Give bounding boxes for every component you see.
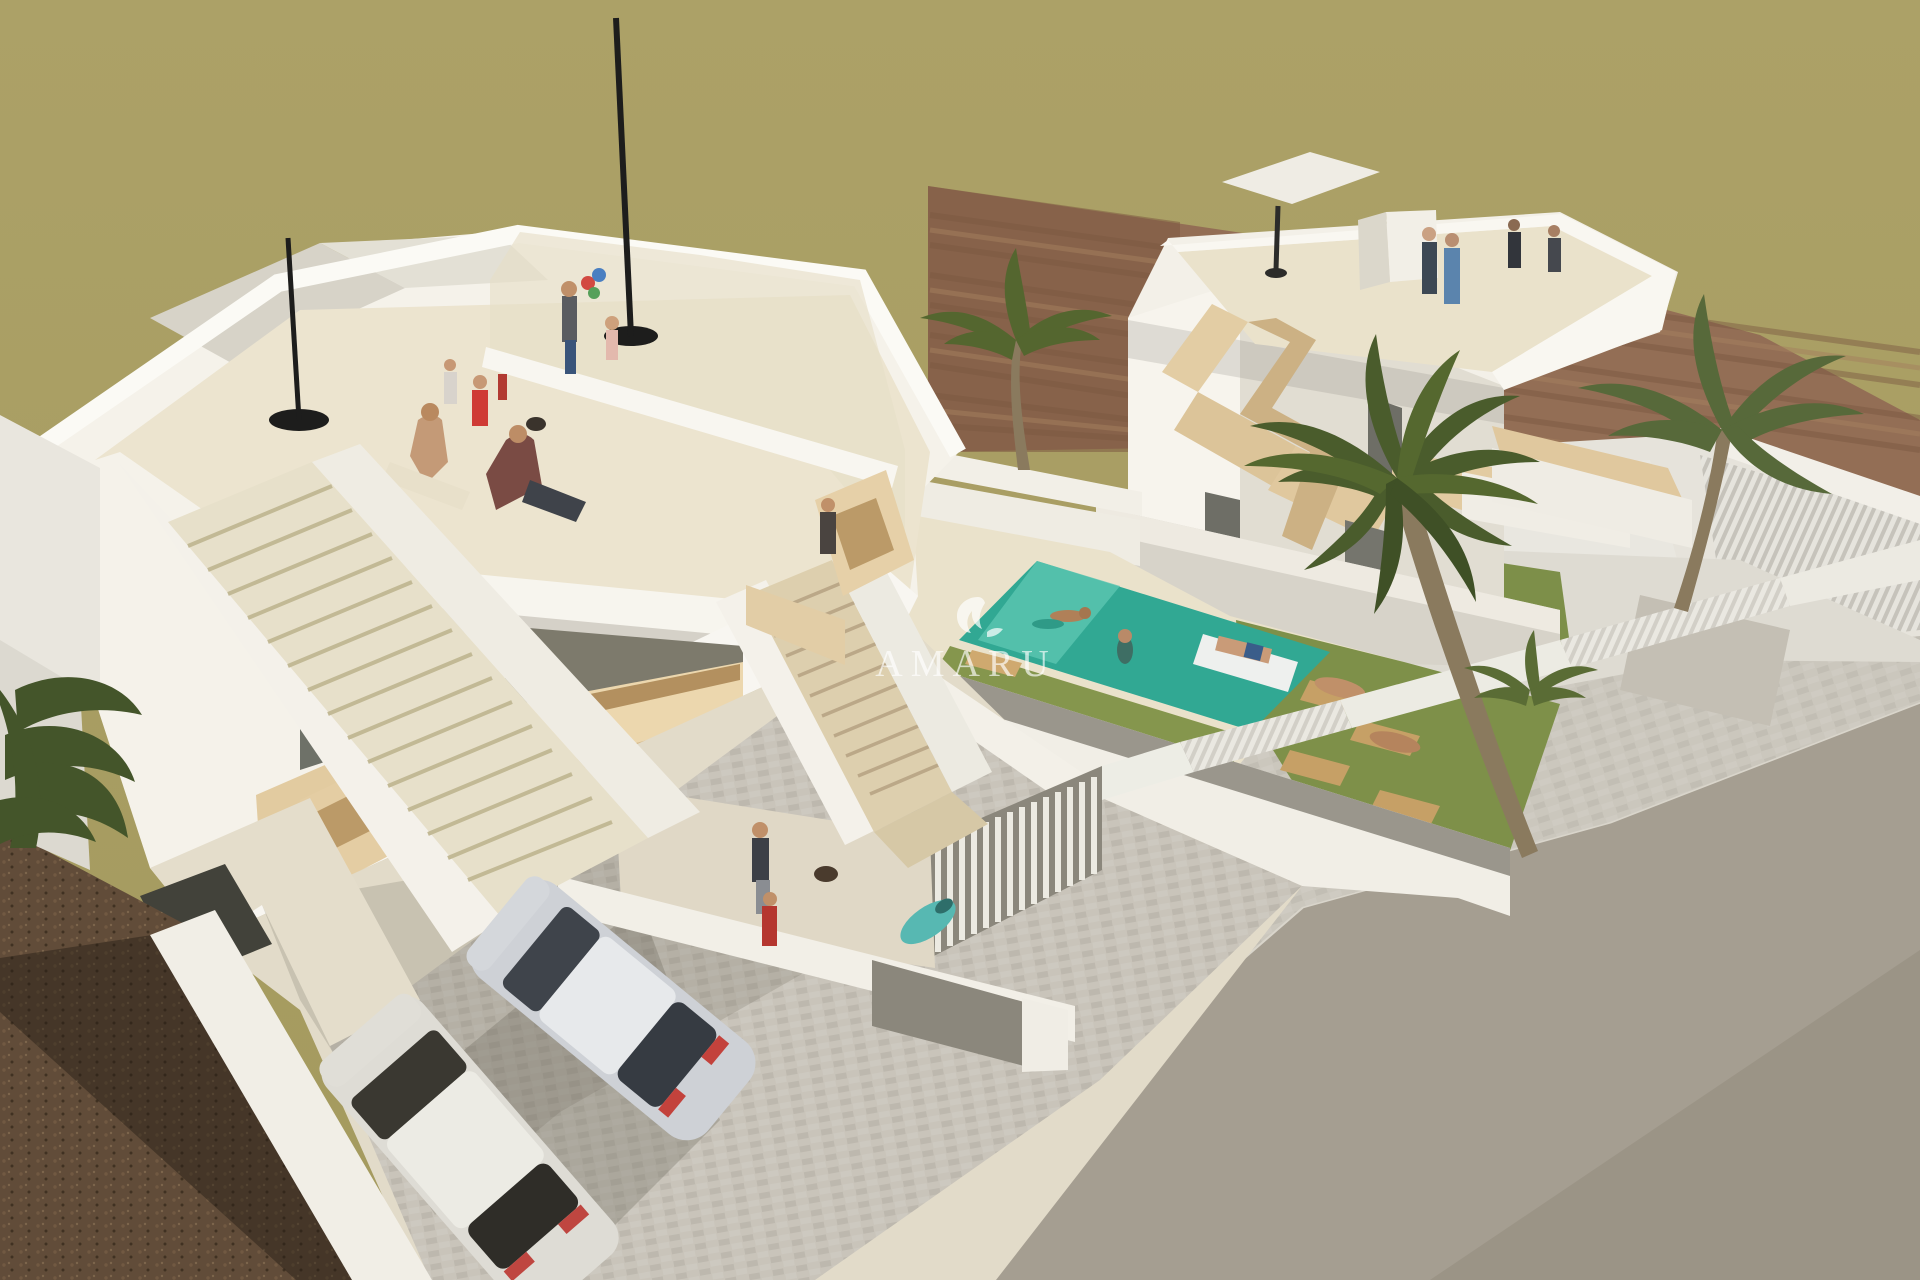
svg-text:AMARU: AMARU bbox=[875, 643, 1056, 685]
